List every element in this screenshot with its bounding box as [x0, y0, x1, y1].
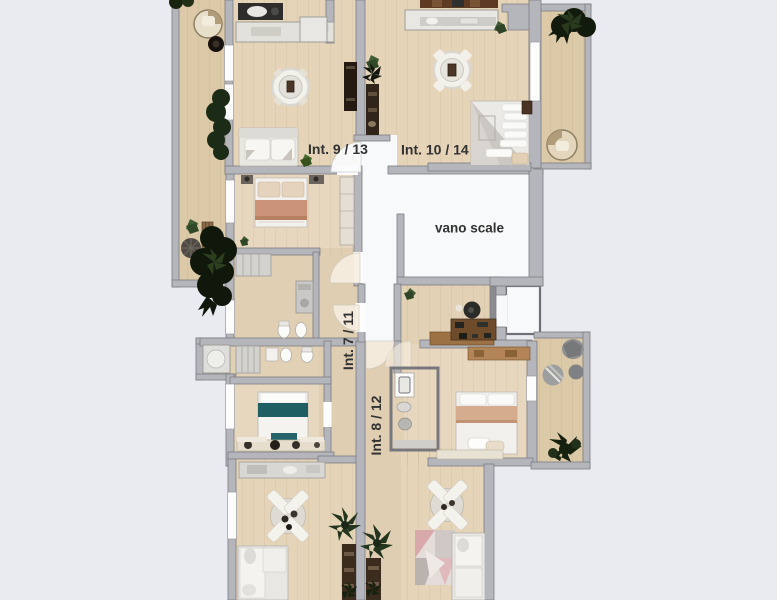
svg-text:Int. 9 / 13: Int. 9 / 13 — [308, 141, 368, 157]
svg-text:Int. 7 / 11: Int. 7 / 11 — [340, 311, 356, 370]
svg-text:Int. 10 / 14: Int. 10 / 14 — [401, 141, 469, 157]
svg-text:Int. 8 / 12: Int. 8 / 12 — [368, 395, 384, 455]
svg-text:vano scale: vano scale — [435, 221, 505, 236]
